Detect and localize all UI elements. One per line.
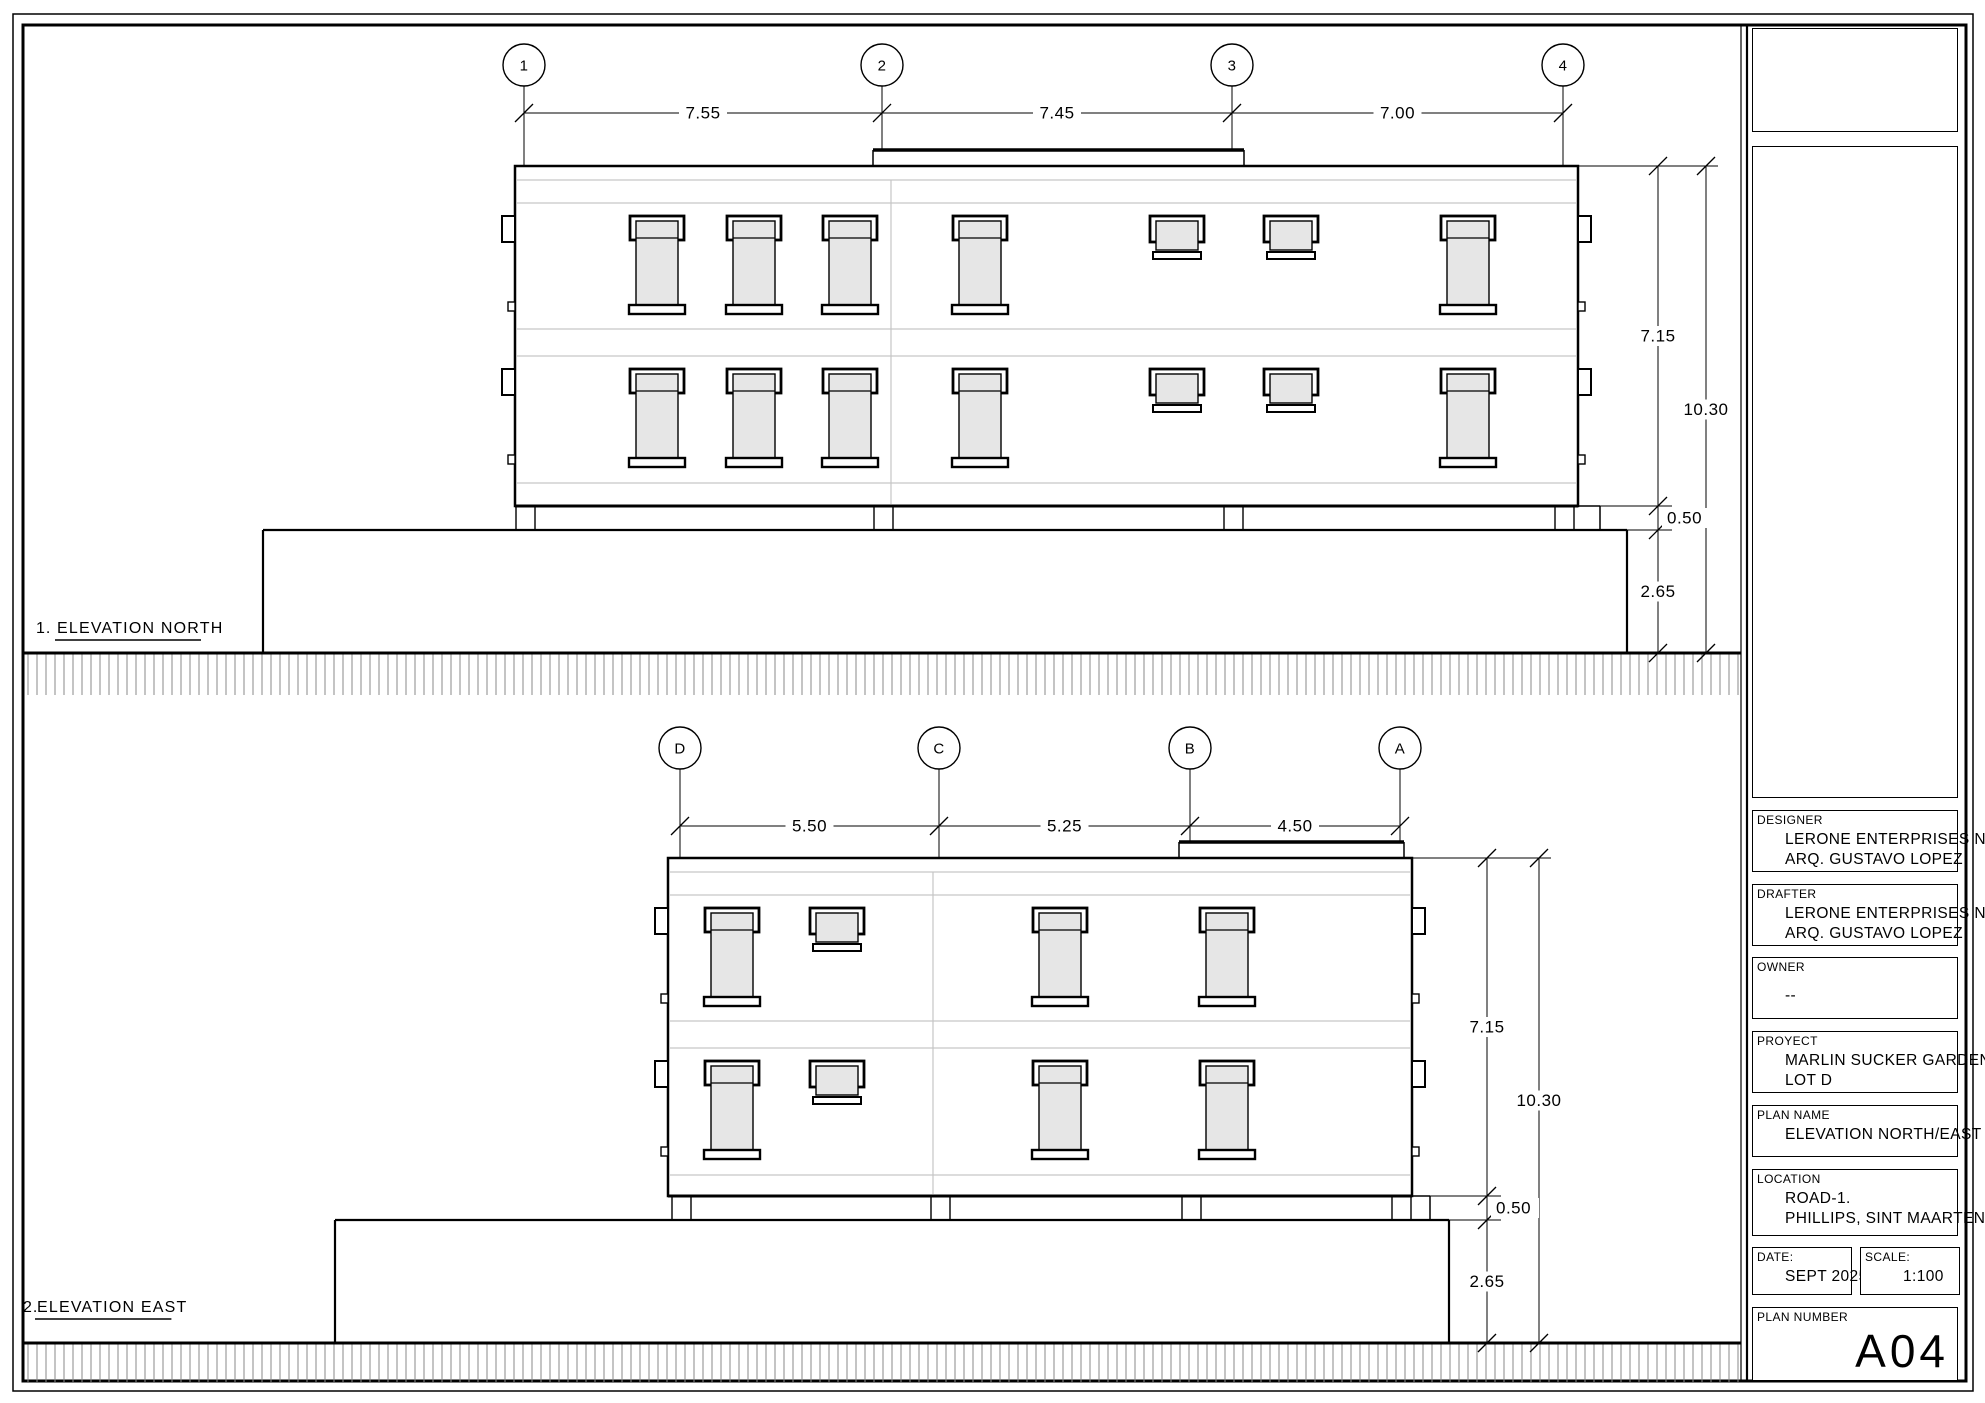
svg-text:A: A [1395, 741, 1406, 758]
north-elevation-grid-dimensions: 12347.557.457.00 [503, 44, 1584, 166]
date-label: DATE: [1753, 1248, 1851, 1264]
east-elevation-grid-dimensions: DCBA5.505.254.50 [659, 727, 1421, 858]
svg-text:C: C [933, 741, 944, 758]
east-elevation-title: 2.ELEVATION EAST [23, 1299, 187, 1319]
scale-value: 1:100 [1861, 1267, 1959, 1287]
project-value: MARLIN SUCKER GARDEN LOT D [1753, 1051, 1957, 1091]
titleblock-location: LOCATION ROAD-1. PHILLIPS, SINT MAARTEN [1752, 1169, 1958, 1236]
svg-text:3: 3 [1228, 58, 1237, 75]
svg-text:0.50: 0.50 [1496, 1199, 1531, 1218]
designer-label: DESIGNER [1753, 811, 1957, 827]
project-label: PROYECT [1753, 1032, 1957, 1048]
svg-text:7.15: 7.15 [1640, 327, 1675, 346]
location-label: LOCATION [1753, 1170, 1957, 1186]
svg-text:7.45: 7.45 [1039, 104, 1074, 123]
titleblock-empty-box-top [1752, 28, 1958, 132]
titleblock-drafter: DRAFTER LERONE ENTERPRISES N.V. ARQ. GUS… [1752, 884, 1958, 946]
drafter-value: LERONE ENTERPRISES N.V. ARQ. GUSTAVO LOP… [1753, 904, 1957, 944]
svg-text:5.50: 5.50 [792, 817, 827, 836]
plan-name-label: PLAN NAME [1753, 1106, 1957, 1122]
scale-label: SCALE: [1861, 1248, 1959, 1264]
svg-text:1: 1 [520, 58, 529, 75]
svg-text:4.50: 4.50 [1277, 817, 1312, 836]
svg-text:2.65: 2.65 [1640, 582, 1675, 601]
north-elevation-ground-hatch [23, 653, 1741, 695]
svg-text:4: 4 [1559, 58, 1568, 75]
svg-text:7.55: 7.55 [685, 104, 720, 123]
east-elevation: DCBA5.505.254.507.150.502.6510.302.ELEVA… [23, 727, 1741, 1382]
drawing-sheet: 12347.557.457.007.150.502.6510.301.ELEVA… [0, 0, 1985, 1403]
plan-name-value: ELEVATION NORTH/EAST [1753, 1125, 1957, 1145]
date-value: SEPT 2025 [1753, 1267, 1851, 1287]
north-elevation: 12347.557.457.007.150.502.6510.301.ELEVA… [23, 44, 1741, 695]
titleblock-plan-number: PLAN NUMBER A04 [1752, 1307, 1958, 1381]
svg-text:7.15: 7.15 [1469, 1018, 1504, 1037]
titleblock-scale: SCALE: 1:100 [1860, 1247, 1960, 1295]
svg-text:2.65: 2.65 [1469, 1272, 1504, 1291]
svg-text:7.00: 7.00 [1380, 104, 1415, 123]
svg-text:5.25: 5.25 [1047, 817, 1082, 836]
east-elevation-ground-hatch [23, 1343, 1741, 1382]
titleblock-owner: OWNER -- [1752, 957, 1958, 1019]
titleblock-date: DATE: SEPT 2025 [1752, 1247, 1852, 1295]
svg-text:ELEVATION EAST: ELEVATION EAST [37, 1299, 187, 1316]
titleblock-plan-name: PLAN NAME ELEVATION NORTH/EAST [1752, 1105, 1958, 1157]
svg-text:ELEVATION NORTH: ELEVATION NORTH [57, 620, 223, 637]
east-elevation-vertical-dimensions: 7.150.502.6510.30 [1412, 849, 1568, 1352]
owner-value: -- [1753, 986, 1957, 1006]
plan-number-label: PLAN NUMBER [1753, 1308, 1957, 1324]
location-value: ROAD-1. PHILLIPS, SINT MAARTEN [1753, 1189, 1957, 1229]
titleblock-empty-box-large [1752, 146, 1958, 798]
svg-text:B: B [1185, 741, 1196, 758]
svg-text:0.50: 0.50 [1667, 509, 1702, 528]
svg-text:2: 2 [878, 58, 887, 75]
drafter-label: DRAFTER [1753, 885, 1957, 901]
plan-number-value: A04 [1855, 1324, 1949, 1378]
designer-value: LERONE ENTERPRISES N.V. ARQ. GUSTAVO LOP… [1753, 830, 1957, 870]
svg-text:10.30: 10.30 [1516, 1091, 1561, 1110]
elevation-drawing-canvas: 12347.557.457.007.150.502.6510.301.ELEVA… [0, 0, 1985, 1403]
titleblock-designer: DESIGNER LERONE ENTERPRISES N.V. ARQ. GU… [1752, 810, 1958, 872]
north-elevation-title: 1.ELEVATION NORTH [36, 620, 223, 640]
owner-label: OWNER [1753, 958, 1957, 974]
svg-text:10.30: 10.30 [1683, 400, 1728, 419]
titleblock-project: PROYECT MARLIN SUCKER GARDEN LOT D [1752, 1031, 1958, 1093]
svg-text:1.: 1. [36, 620, 51, 637]
north-elevation-vertical-dimensions: 7.150.502.6510.30 [1578, 157, 1735, 662]
svg-text:D: D [674, 741, 685, 758]
